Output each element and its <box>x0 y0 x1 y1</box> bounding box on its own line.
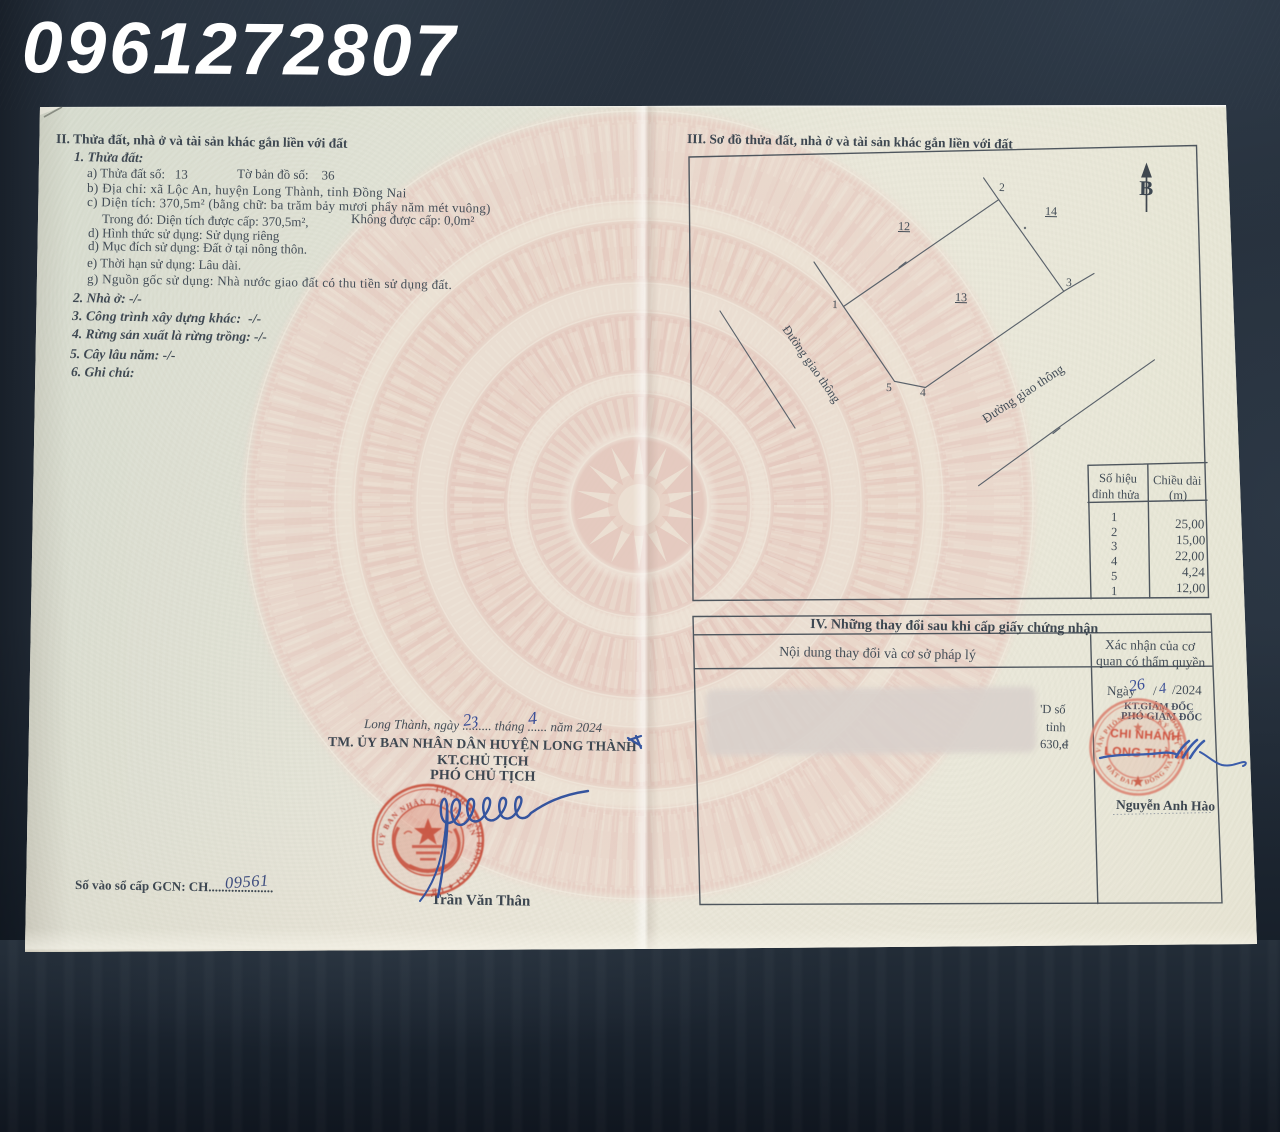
svg-text:UỶ BAN NHÂN DÂN HUYỆN LONG: UỶ BAN NHÂN DÂN HUYỆN LONG <box>0 0 479 846</box>
svg-text:THÀNH ✦ TỈNH ĐỒNG NAI ✦ UBND: THÀNH ✦ TỈNH ĐỒNG NAI ✦ UBND <box>0 0 484 896</box>
svg-text:ĐẤT ĐAI ✦ ĐỒNG NAI: ĐẤT ĐAI ✦ ĐỒNG NAI <box>0 0 1175 787</box>
svg-text:VĂN PHÒNG ĐĂNG KÝ ĐẤT ĐAI: VĂN PHÒNG ĐĂNG KÝ ĐẤT ĐAI <box>0 0 1180 753</box>
